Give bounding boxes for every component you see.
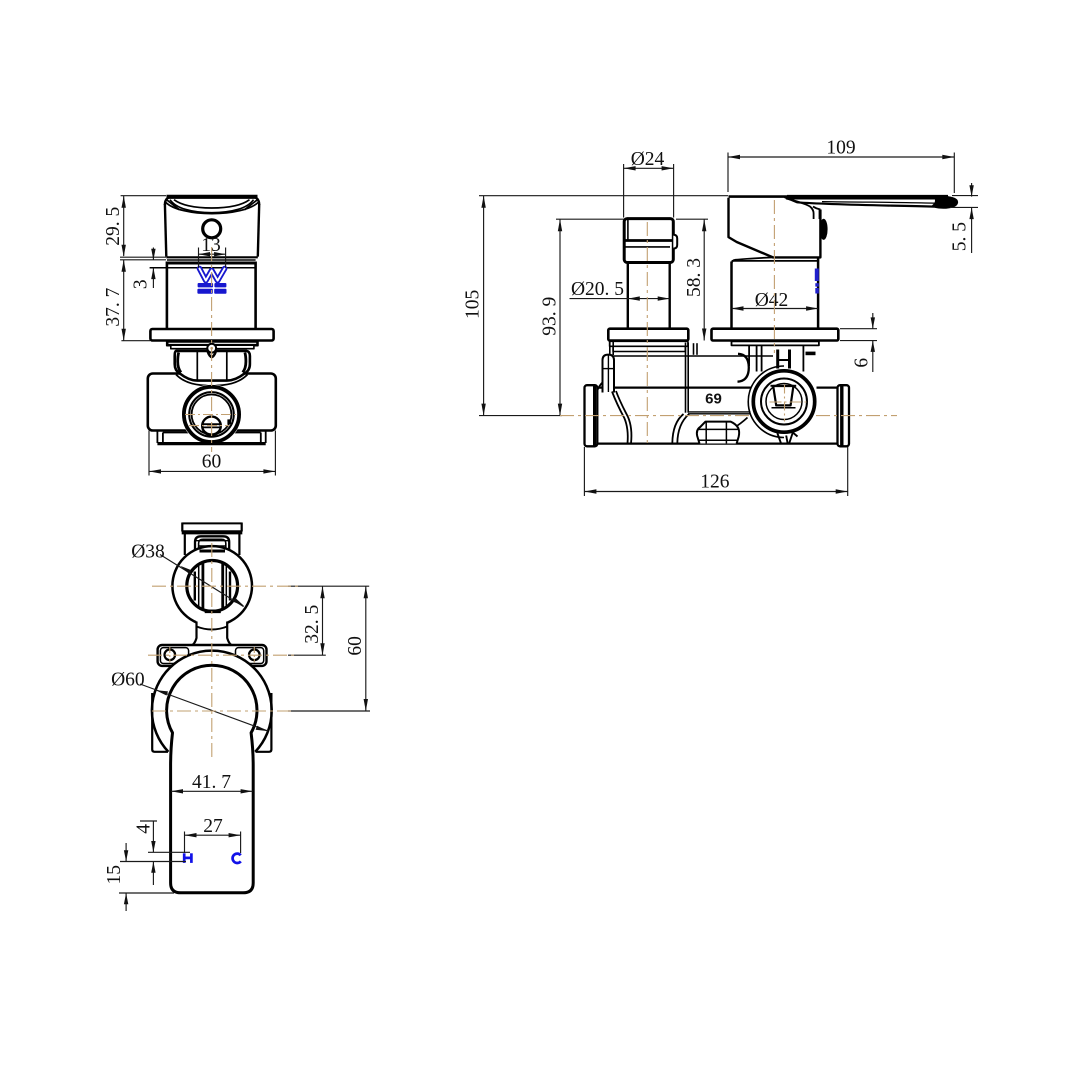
svg-text:Ø42: Ø42 (755, 290, 789, 311)
svg-text:109: 109 (826, 138, 855, 159)
svg-text:Ø60: Ø60 (111, 670, 145, 691)
svg-text:105: 105 (463, 290, 484, 319)
svg-text:37. 7: 37. 7 (103, 287, 124, 326)
svg-text:41. 7: 41. 7 (192, 772, 231, 793)
svg-text:15: 15 (104, 865, 125, 885)
svg-text:29. 5: 29. 5 (103, 207, 124, 246)
svg-text:32. 5: 32. 5 (302, 605, 323, 644)
svg-text:Ø20. 5: Ø20. 5 (571, 279, 624, 300)
svg-text:60: 60 (345, 636, 366, 656)
svg-text:6: 6 (851, 358, 872, 368)
svg-text:27: 27 (203, 816, 223, 837)
svg-text:Ø38: Ø38 (131, 542, 165, 563)
svg-text:126: 126 (700, 472, 730, 493)
svg-text:3: 3 (131, 279, 152, 289)
svg-text:5. 5: 5. 5 (949, 222, 970, 251)
svg-text:60: 60 (202, 452, 222, 473)
svg-text:69: 69 (705, 391, 722, 408)
svg-text:4: 4 (134, 824, 155, 834)
svg-text:13: 13 (201, 235, 221, 256)
svg-text:58. 3: 58. 3 (684, 258, 705, 297)
svg-text:Ø24: Ø24 (631, 149, 665, 170)
svg-text:93. 9: 93. 9 (540, 297, 561, 336)
